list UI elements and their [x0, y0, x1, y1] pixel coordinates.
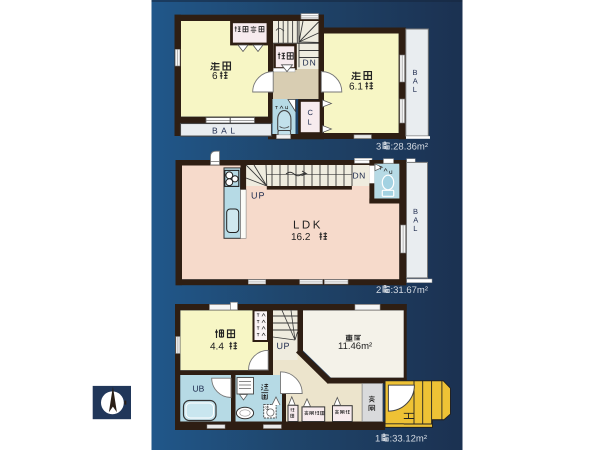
- svg-text:16.2: 16.2: [291, 232, 311, 243]
- svg-text:DN: DN: [303, 58, 317, 68]
- svg-text:L: L: [308, 118, 312, 127]
- svg-text:1: 1: [375, 434, 380, 445]
- svg-text::33.12m²: :33.12m²: [390, 434, 428, 445]
- svg-text:L: L: [413, 85, 417, 94]
- svg-text:4.4: 4.4: [210, 342, 224, 353]
- svg-text:LDK: LDK: [293, 220, 323, 232]
- svg-text:6: 6: [212, 71, 218, 82]
- svg-text:UP: UP: [277, 341, 291, 351]
- svg-text:L: L: [413, 224, 417, 233]
- svg-text::31.67m²: :31.67m²: [391, 285, 429, 296]
- svg-text:DN: DN: [353, 171, 366, 181]
- svg-text::28.36m²: :28.36m²: [391, 142, 429, 153]
- svg-text:3: 3: [376, 142, 381, 153]
- svg-text:11.46m²: 11.46m²: [338, 341, 372, 352]
- svg-text:UB: UB: [193, 384, 205, 394]
- svg-text:C: C: [308, 108, 314, 117]
- svg-text:BAL: BAL: [212, 126, 239, 136]
- svg-text:2: 2: [376, 285, 381, 296]
- svg-text:6.1: 6.1: [349, 82, 363, 93]
- svg-text:UP: UP: [251, 191, 266, 201]
